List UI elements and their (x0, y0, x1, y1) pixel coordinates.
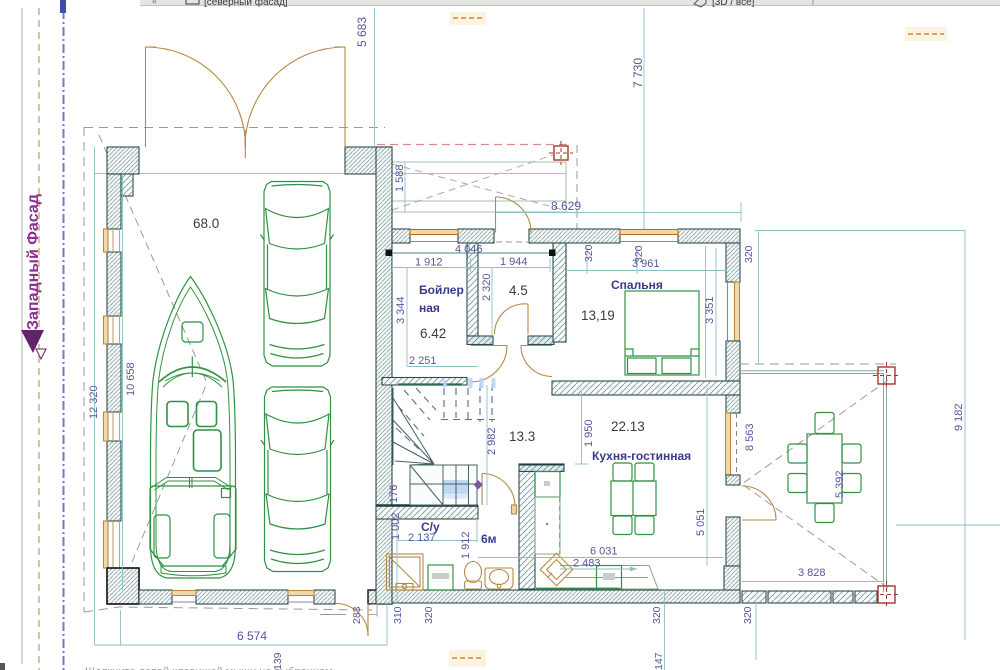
svg-text:283: 283 (351, 606, 363, 624)
svg-text:22.13: 22.13 (611, 419, 645, 434)
svg-text:5 051: 5 051 (695, 508, 707, 536)
svg-text:13,19: 13,19 (581, 308, 615, 323)
svg-text:5 683: 5 683 (355, 17, 369, 47)
svg-text:68.0: 68.0 (193, 216, 219, 231)
svg-text:320: 320 (651, 606, 663, 624)
svg-text:3 351: 3 351 (704, 296, 716, 324)
svg-text:310: 310 (392, 606, 404, 624)
svg-text:Щелкните левой клавишей мыши н: Щелкните левой клавишей мыши на выбранно… (85, 666, 333, 670)
svg-text:3 961: 3 961 (632, 258, 660, 270)
svg-text:6.42: 6.42 (420, 326, 446, 341)
svg-text:1 912: 1 912 (415, 257, 443, 269)
svg-text:«: « (152, 0, 157, 6)
svg-text:[3D / все]: [3D / все] (712, 0, 755, 8)
svg-text:6 574: 6 574 (237, 629, 267, 643)
svg-text:2 483: 2 483 (573, 558, 601, 570)
svg-text:[северный фасад]: [северный фасад] (204, 0, 288, 8)
svg-text:1 912: 1 912 (460, 531, 472, 559)
svg-text:2 982: 2 982 (486, 427, 498, 455)
svg-text:1 002: 1 002 (390, 512, 402, 540)
svg-text:4 046: 4 046 (455, 244, 483, 256)
svg-text:2 320: 2 320 (481, 273, 493, 301)
svg-text:176: 176 (388, 485, 400, 503)
svg-text:2 251: 2 251 (409, 355, 437, 367)
svg-text:3 828: 3 828 (798, 567, 826, 579)
svg-text:3 344: 3 344 (395, 296, 407, 324)
svg-text:Спальня: Спальня (611, 278, 663, 292)
svg-text:147: 147 (653, 652, 665, 670)
svg-text:1 588: 1 588 (394, 164, 406, 192)
svg-text:320: 320 (583, 244, 595, 262)
svg-text:Западный Фасад: Западный Фасад (25, 194, 42, 330)
svg-text:320: 320 (423, 606, 435, 624)
svg-text:6м: 6м (481, 532, 497, 546)
svg-text:8 563: 8 563 (744, 423, 756, 451)
svg-text:Кухня-гостинная: Кухня-гостинная (592, 449, 691, 463)
svg-text:320: 320 (743, 245, 755, 263)
svg-text:8 629: 8 629 (551, 199, 581, 213)
svg-text:320: 320 (742, 606, 754, 624)
svg-text:5 392: 5 392 (834, 470, 846, 498)
svg-text:9 182: 9 182 (953, 403, 965, 431)
svg-text:С/у: С/у (421, 520, 440, 534)
svg-text:ная: ная (419, 301, 440, 315)
svg-text:13.3: 13.3 (509, 429, 535, 444)
svg-text:4.5: 4.5 (509, 283, 528, 298)
svg-text:1 950: 1 950 (583, 419, 595, 447)
svg-text:10 658: 10 658 (125, 362, 137, 396)
svg-text:6 031: 6 031 (590, 546, 618, 558)
svg-text:7 730: 7 730 (631, 58, 645, 88)
svg-text:1 944: 1 944 (500, 256, 528, 268)
svg-text:12 320: 12 320 (88, 385, 100, 419)
svg-text:Бойлер: Бойлер (419, 283, 464, 297)
